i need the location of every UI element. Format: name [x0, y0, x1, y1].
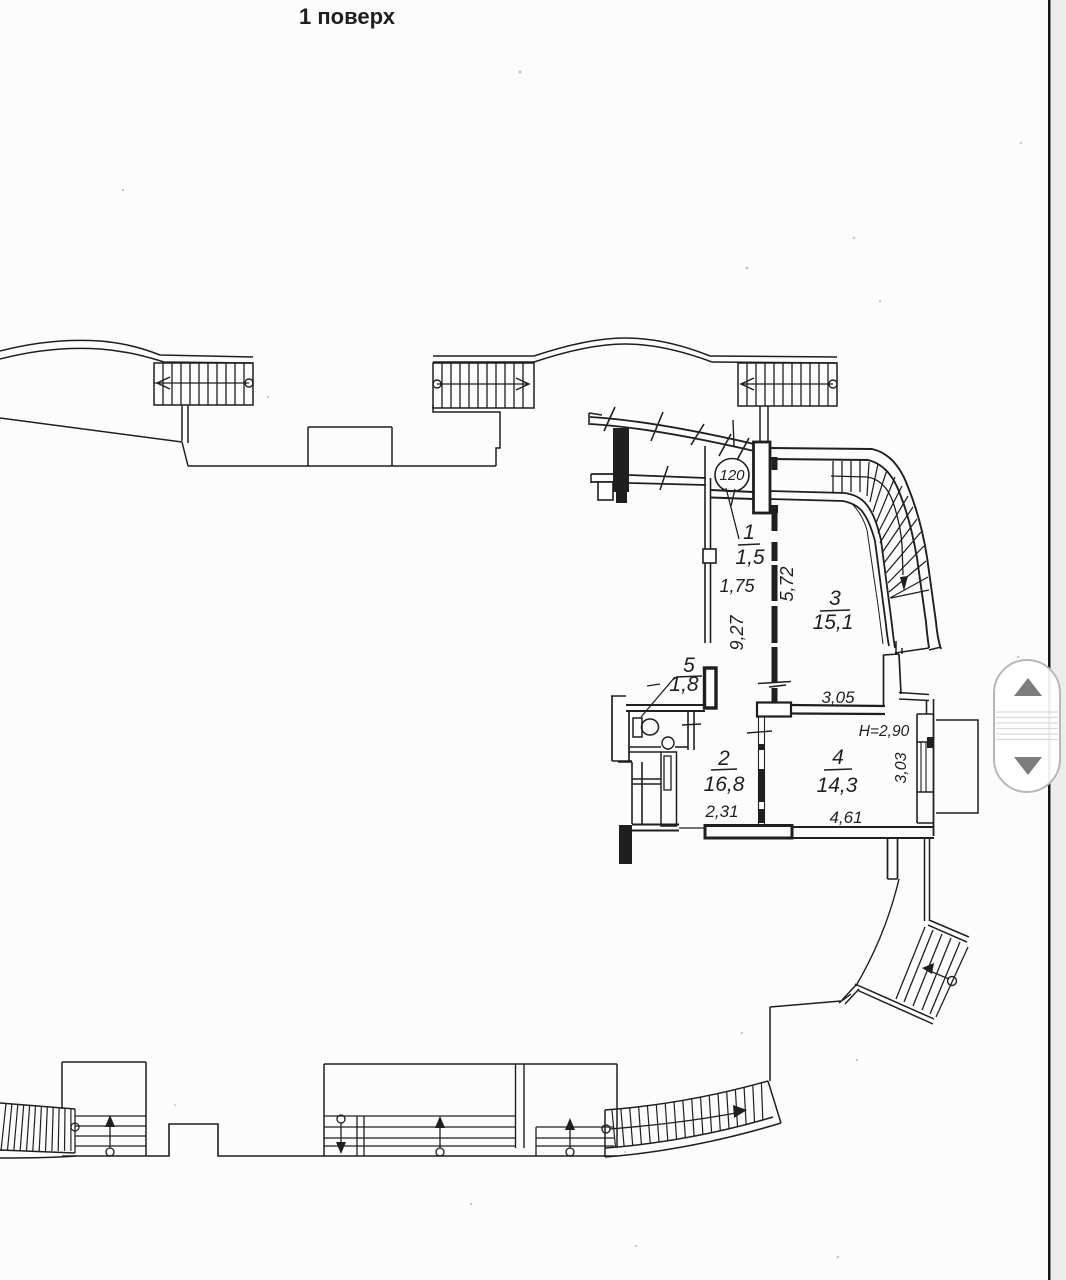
svg-text:4,61: 4,61 — [829, 808, 862, 827]
svg-text:5,72: 5,72 — [777, 566, 797, 601]
svg-text:1: 1 — [743, 521, 755, 544]
svg-text:1,8: 1,8 — [669, 673, 699, 696]
svg-text:2: 2 — [717, 747, 730, 770]
svg-text:2,31: 2,31 — [704, 802, 738, 821]
svg-text:9,27: 9,27 — [727, 615, 747, 651]
svg-text:16,8: 16,8 — [704, 773, 745, 796]
svg-text:3,05: 3,05 — [821, 688, 855, 707]
svg-text:1,5: 1,5 — [735, 546, 765, 569]
svg-text:4: 4 — [832, 746, 844, 769]
svg-text:120: 120 — [719, 467, 745, 484]
svg-text:14,3: 14,3 — [817, 774, 858, 797]
svg-text:3: 3 — [829, 587, 841, 610]
svg-text:3,03: 3,03 — [893, 752, 910, 783]
svg-text:1 поверх: 1 поверх — [299, 4, 396, 29]
svg-text:1,75: 1,75 — [719, 576, 755, 596]
svg-text:15,1: 15,1 — [813, 611, 854, 634]
svg-text:H=2,90: H=2,90 — [859, 723, 910, 740]
